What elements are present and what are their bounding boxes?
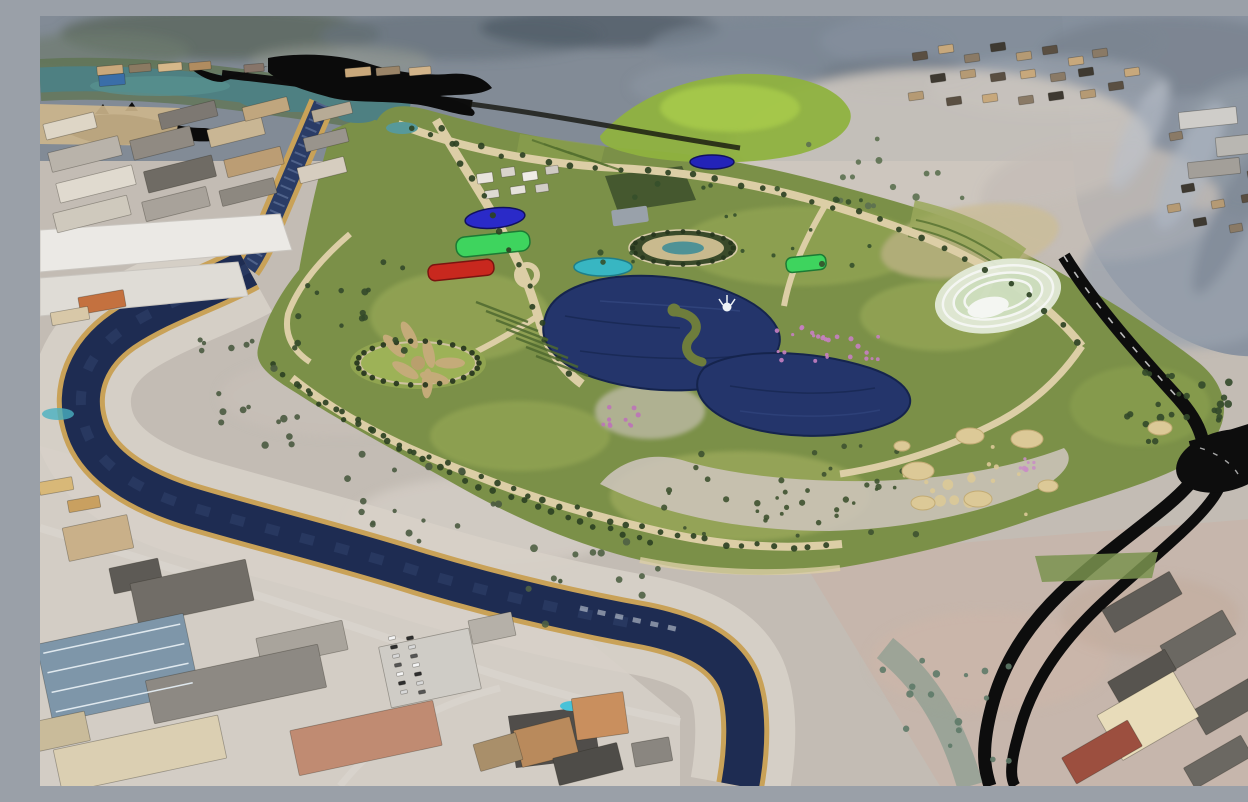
dark-blue-pond	[690, 155, 734, 169]
riverside-green-strip	[1035, 552, 1158, 582]
masterplan-canvas	[40, 16, 1248, 786]
fountain	[723, 303, 732, 312]
masterplan-render	[40, 16, 1248, 786]
small-pool-left	[42, 408, 74, 420]
